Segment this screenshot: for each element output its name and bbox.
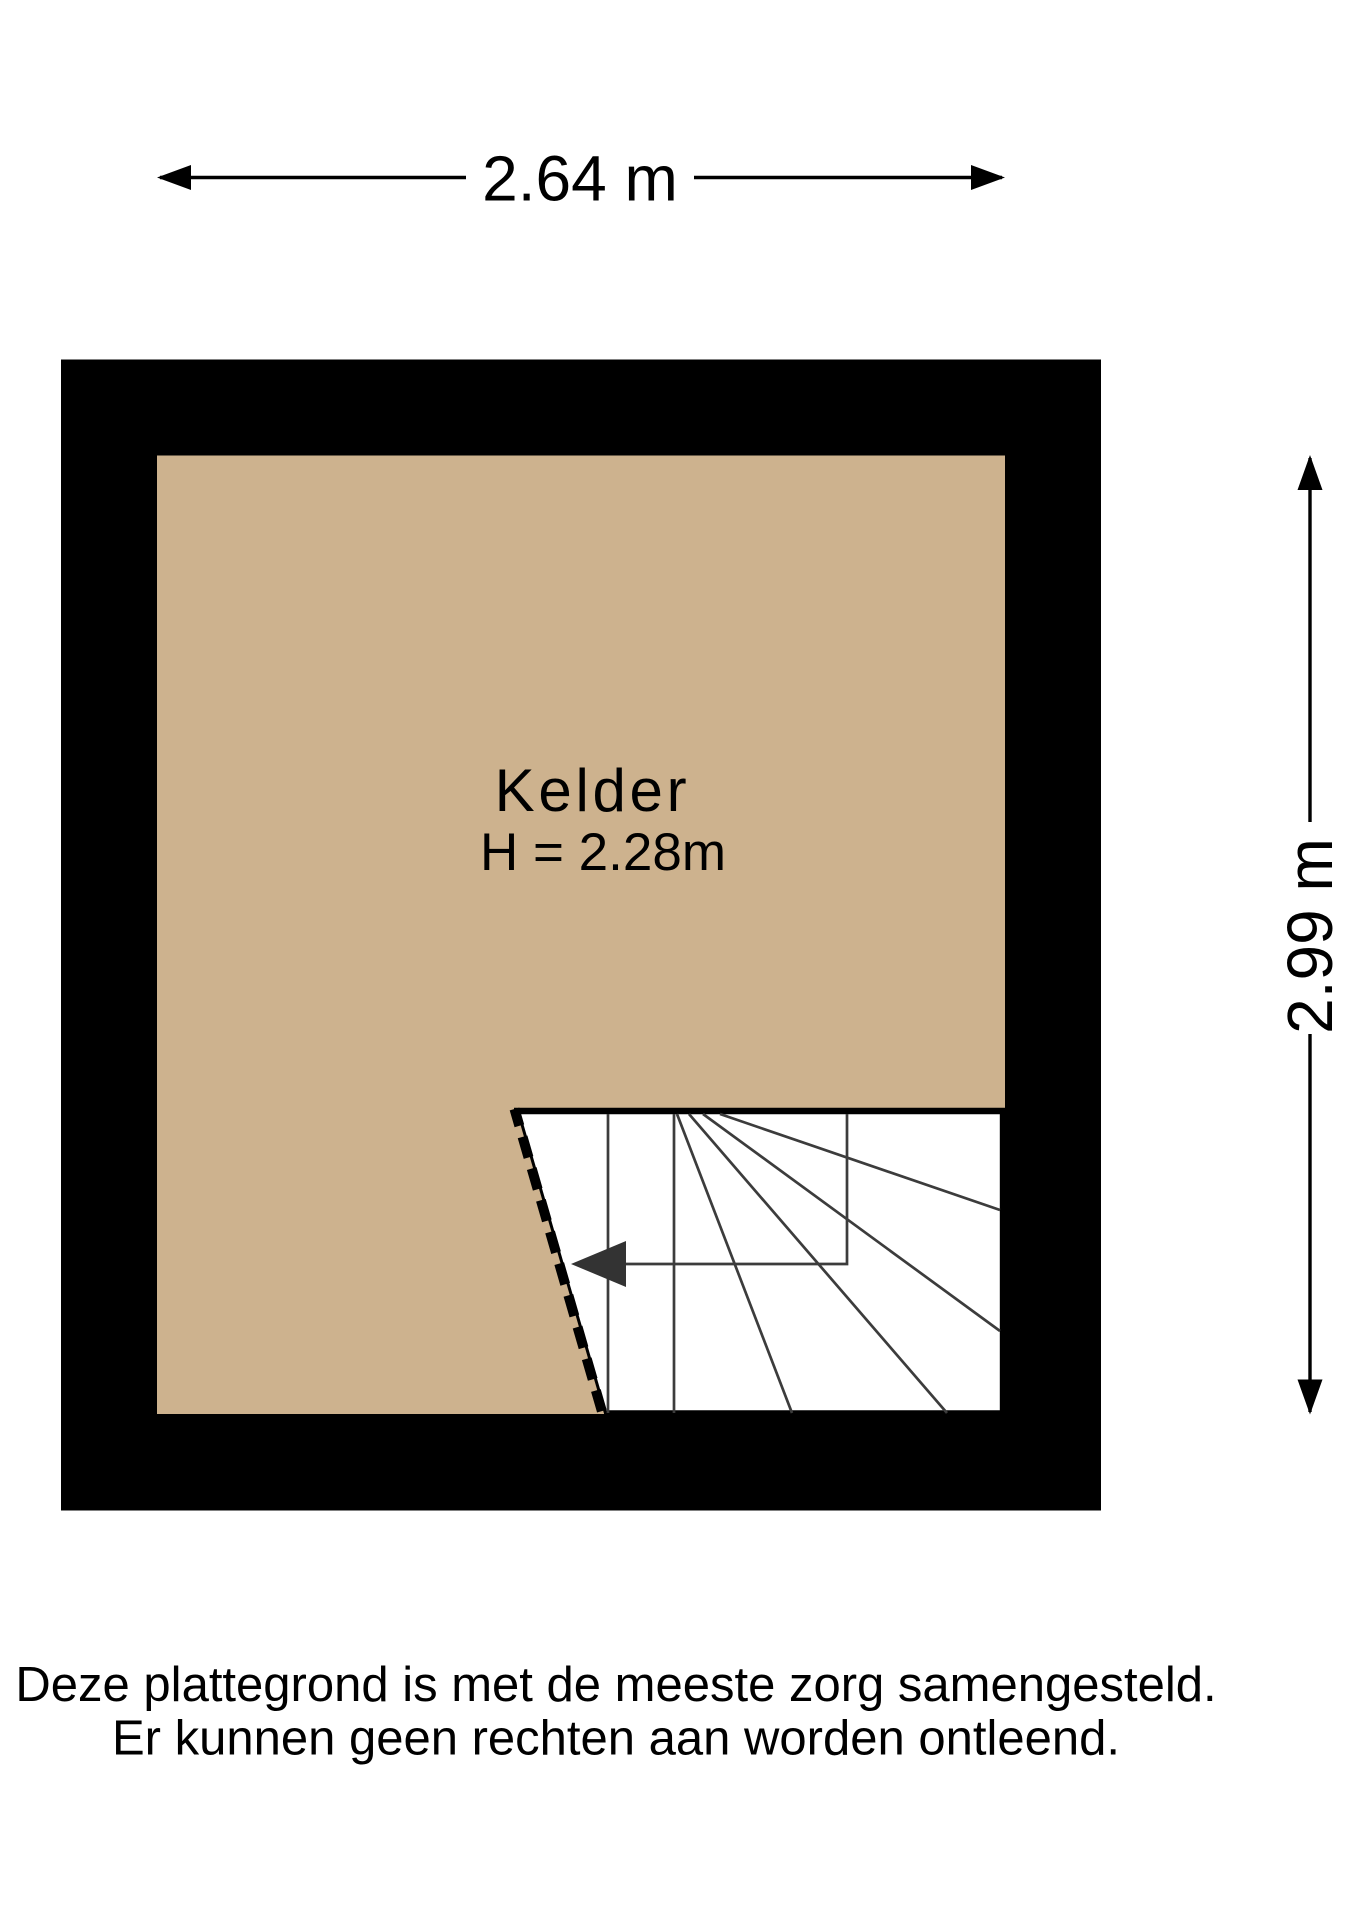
svg-text:2.99 m: 2.99 m [1274, 838, 1346, 1034]
svg-text:Deze plattegrond is met de mee: Deze plattegrond is met de meeste zorg s… [15, 1658, 1216, 1712]
svg-text:H = 2.28m: H = 2.28m [480, 823, 726, 882]
svg-text:Kelder: Kelder [495, 757, 691, 824]
svg-text:Er kunnen geen rechten aan wor: Er kunnen geen rechten aan worden ontlee… [112, 1712, 1120, 1766]
svg-text:2.64 m: 2.64 m [482, 143, 678, 215]
